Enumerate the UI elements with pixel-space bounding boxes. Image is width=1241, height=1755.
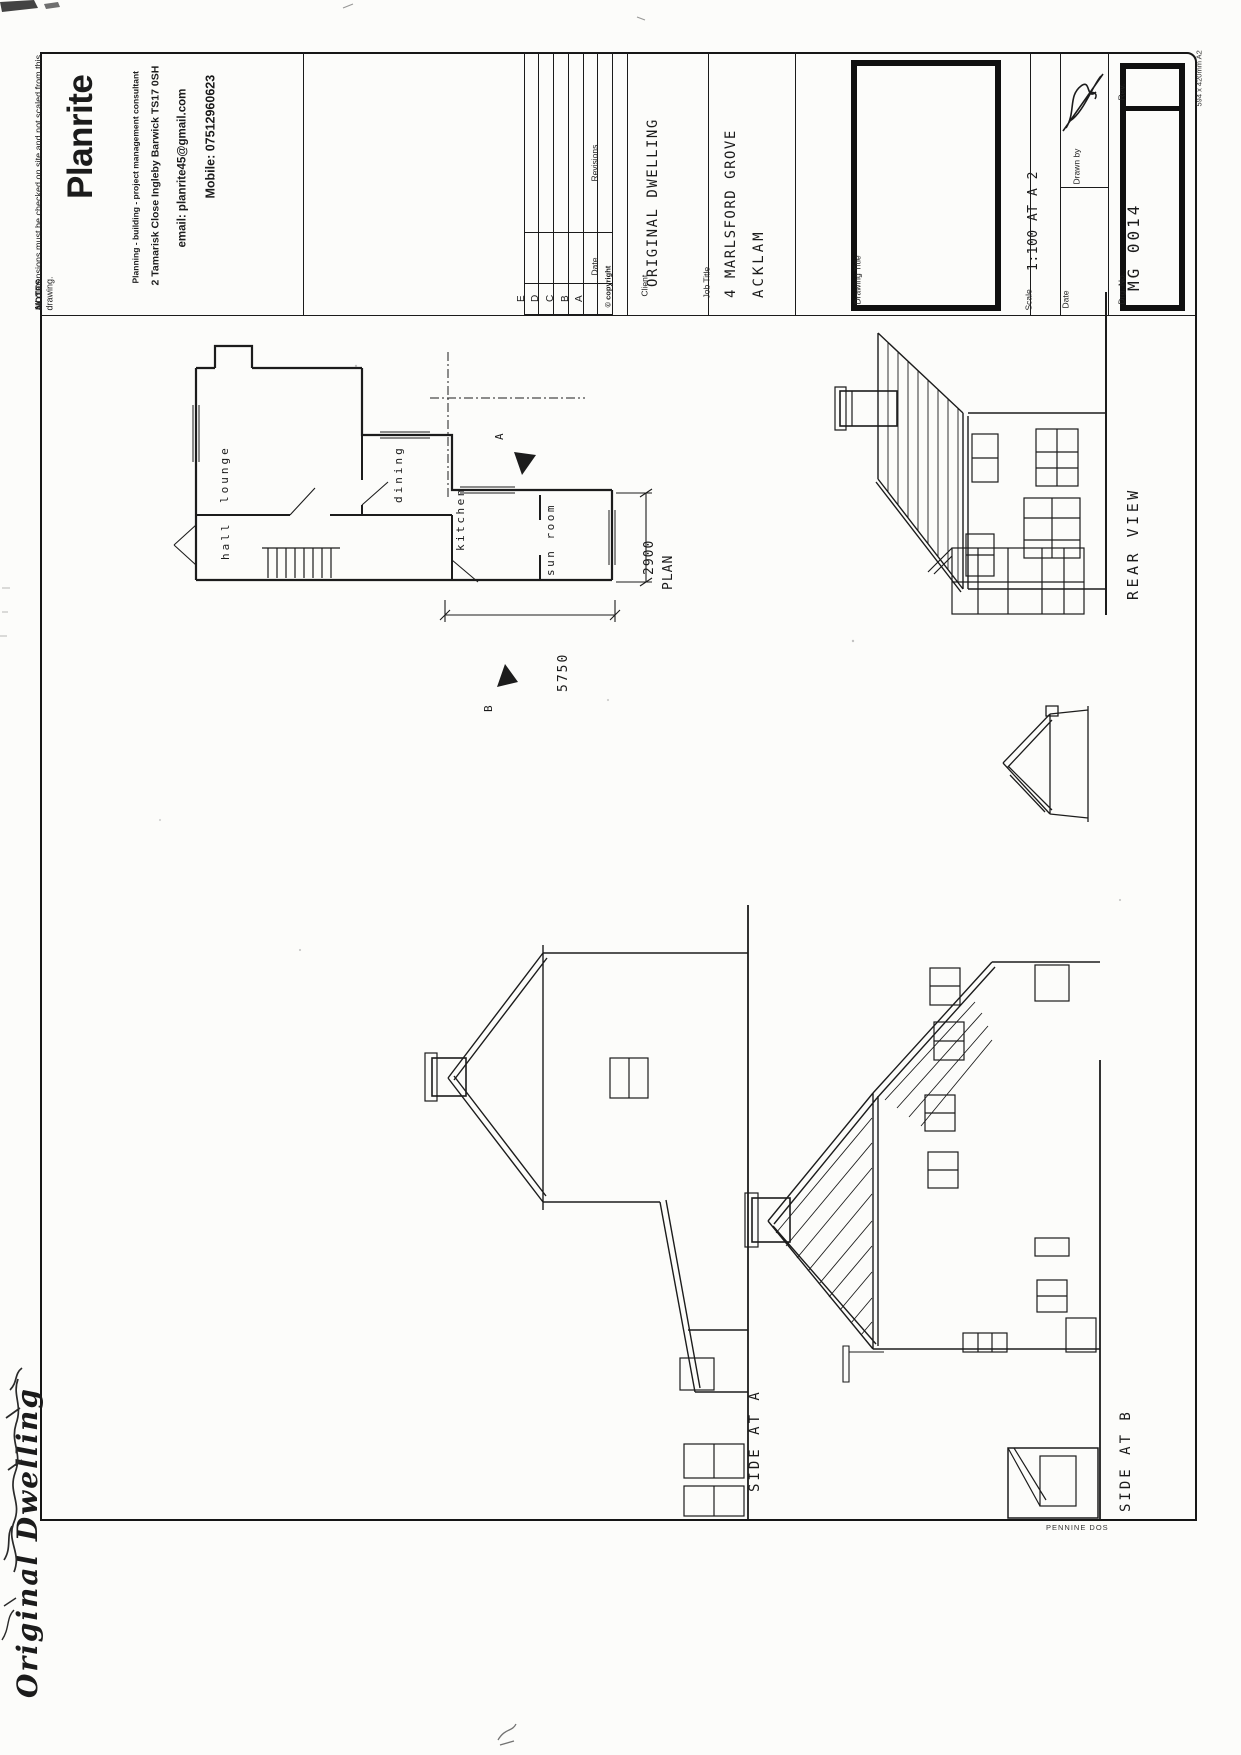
bay-window: [1008, 1448, 1098, 1518]
plan-windows: [193, 405, 615, 565]
scanned-drawing-sheet: NOTES All dimensions must be checked on …: [0, 0, 1241, 1755]
porch-post: [843, 1346, 884, 1382]
scan-artifacts: [0, 0, 1121, 1745]
signature: [1063, 74, 1103, 131]
garage-gable: [1003, 706, 1088, 822]
section-lines: [430, 352, 585, 500]
drawing-linework: [0, 0, 1241, 1755]
side-b-windows: [925, 965, 1096, 1352]
floor-plan: [174, 346, 615, 582]
section-marker-a-icon: [514, 452, 536, 475]
rear-windows: [966, 429, 1080, 576]
side-a-elevation: [425, 905, 748, 1520]
side-a-windows: [680, 1358, 744, 1516]
rear-view-elevation: [835, 292, 1106, 615]
plan-dimensions: [440, 489, 652, 622]
section-marker-b-icon: [497, 664, 518, 687]
side-b-elevation: [745, 962, 1100, 1519]
roof-course-lines: [888, 342, 958, 583]
stairs: [262, 548, 340, 578]
handwritten-scribble: [2, 1368, 22, 1640]
door-swings: [174, 482, 478, 582]
